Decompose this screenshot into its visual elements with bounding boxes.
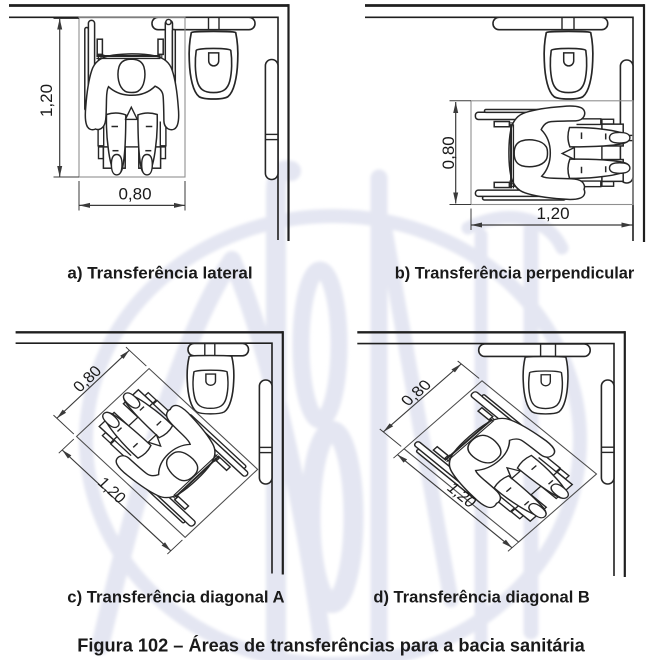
svg-text:0,80: 0,80	[118, 184, 151, 203]
svg-text:b) Transferência perpendicular: b) Transferência perpendicular	[395, 265, 635, 283]
svg-text:0,80: 0,80	[439, 136, 458, 169]
svg-text:1,20: 1,20	[37, 84, 56, 117]
svg-text:d) Transferência diagonal B: d) Transferência diagonal B	[373, 589, 589, 607]
svg-text:c) Transferência diagonal A: c) Transferência diagonal A	[67, 588, 284, 607]
svg-text:1,20: 1,20	[536, 204, 569, 223]
svg-text:Figura 102 – Áreas de transfer: Figura 102 – Áreas de transferências par…	[77, 634, 585, 655]
svg-text:a) Transferência lateral: a) Transferência lateral	[67, 264, 252, 283]
